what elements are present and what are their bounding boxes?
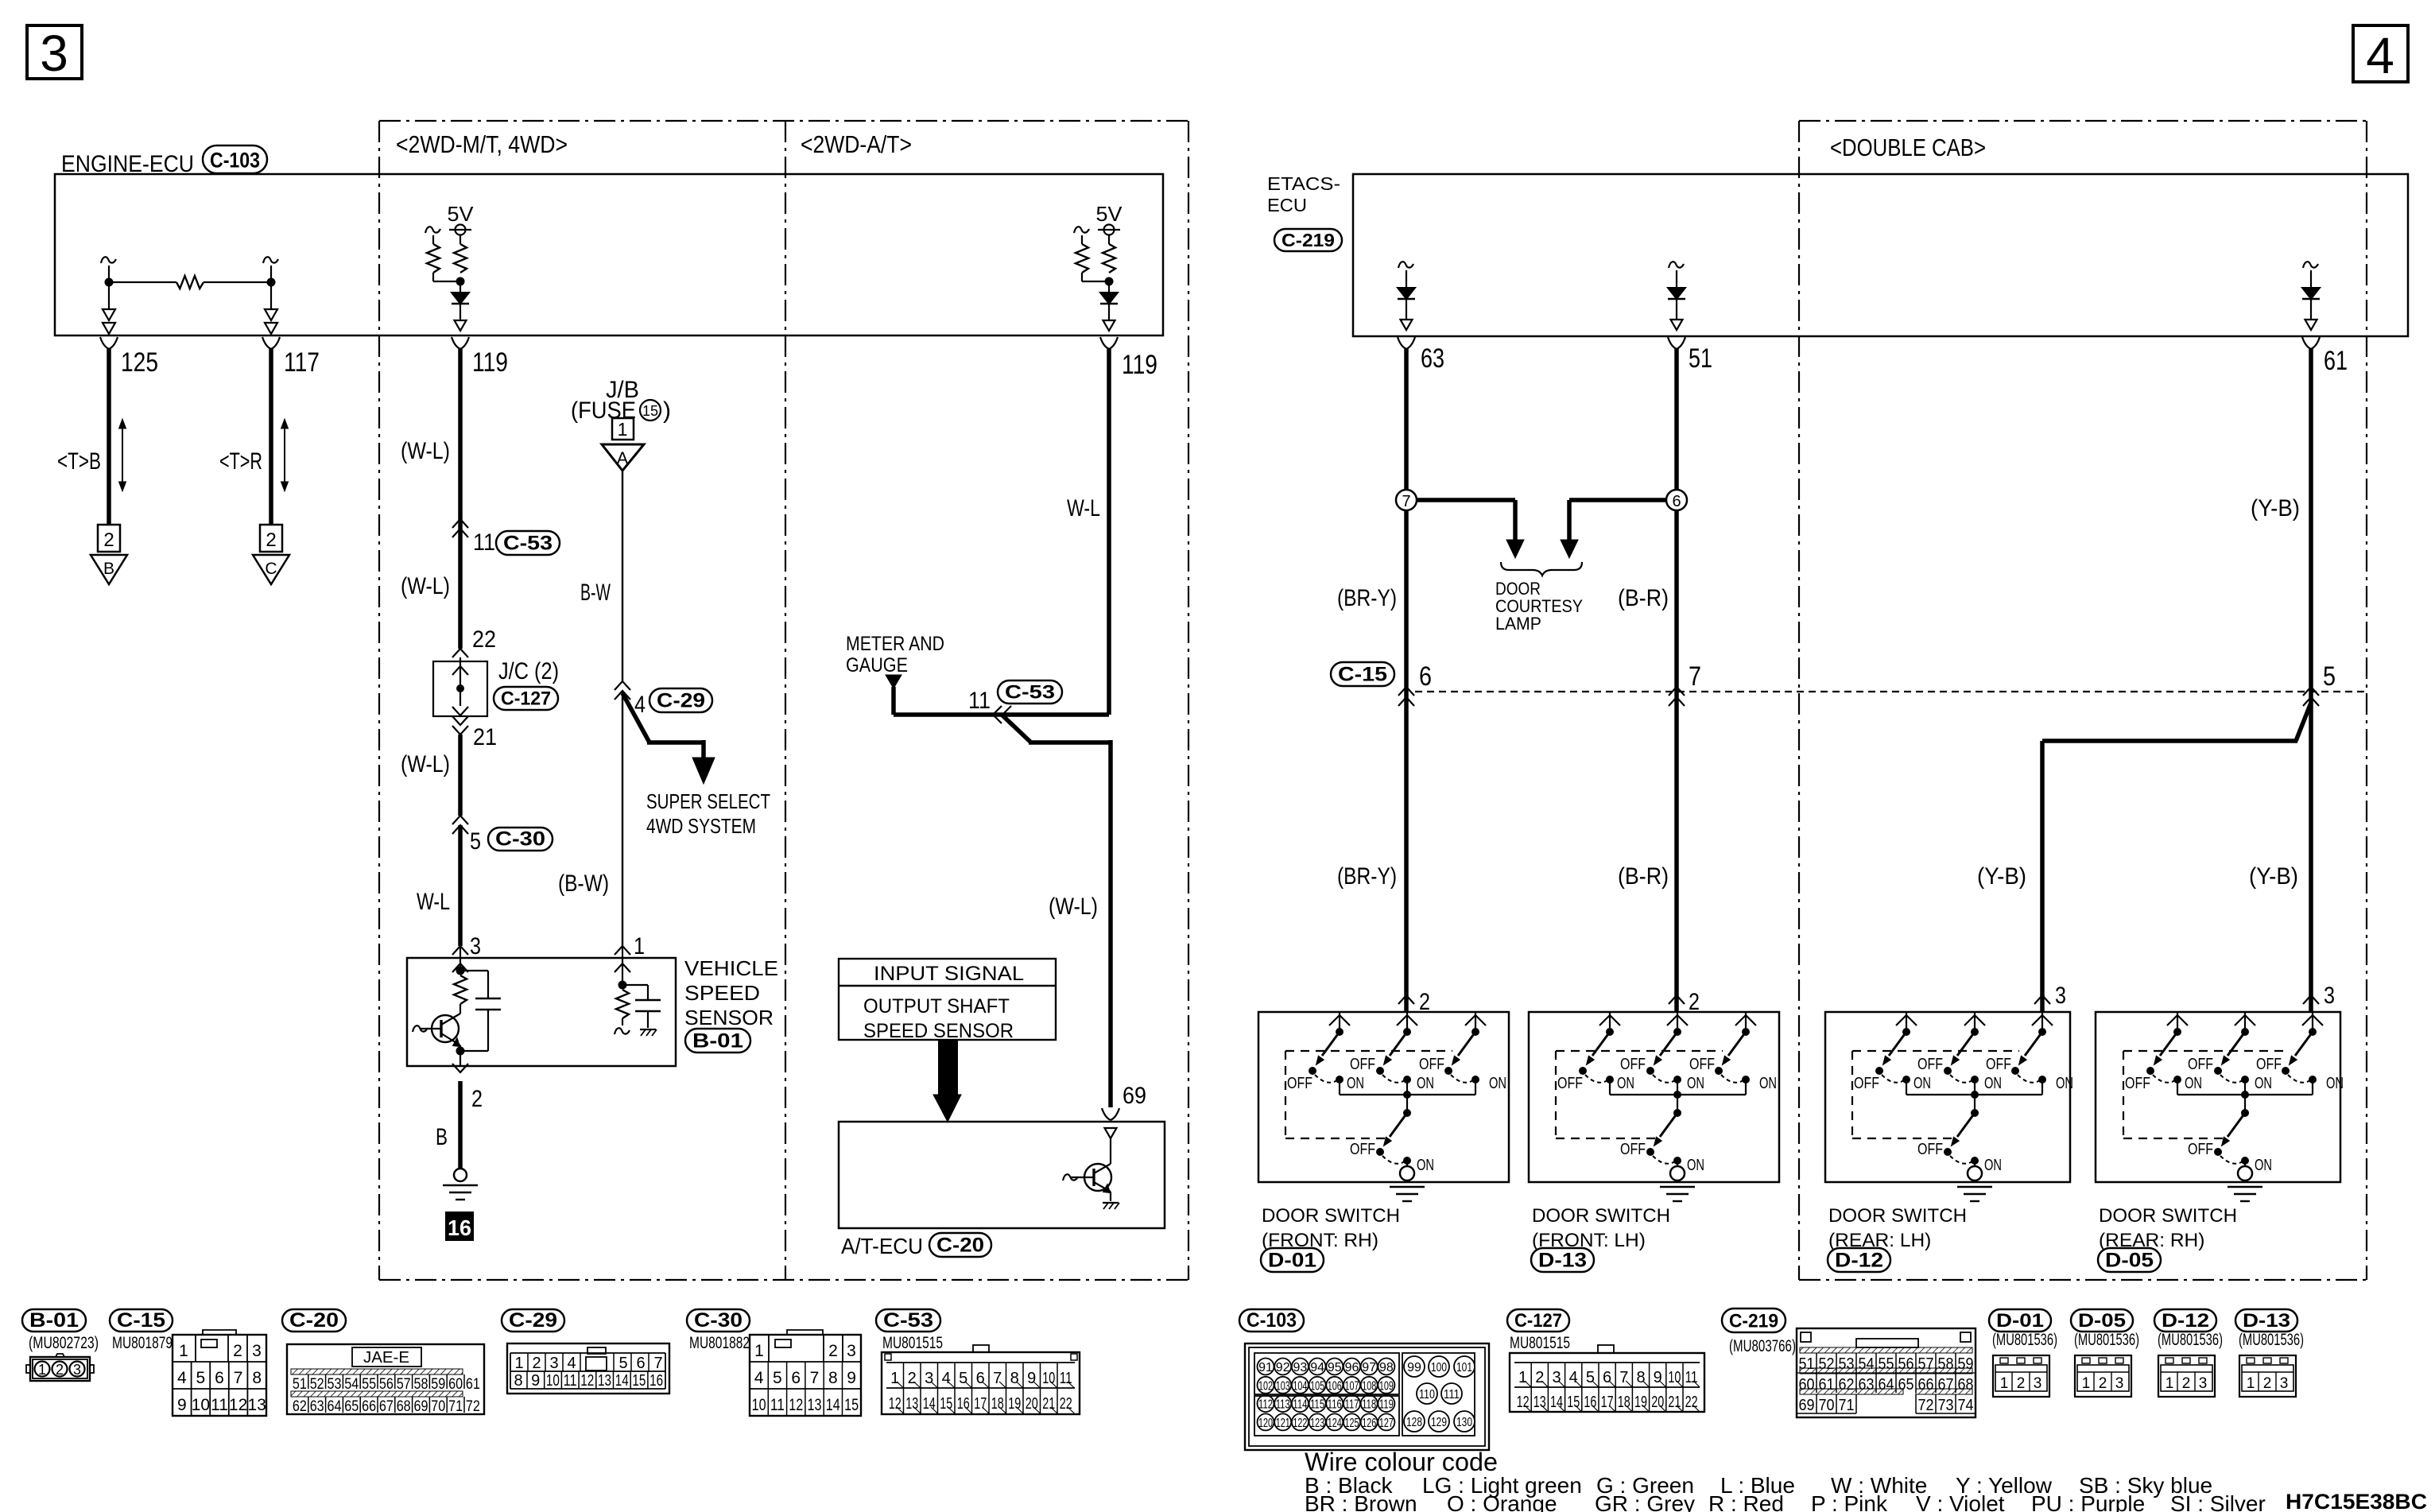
svg-text:DOOR SWITCH: DOOR SWITCH (1532, 1205, 1670, 1227)
svg-text:8: 8 (1636, 1369, 1645, 1386)
svg-text:ON: ON (2255, 1157, 2272, 1174)
svg-text:SPEED: SPEED (684, 981, 760, 1005)
svg-text:15: 15 (632, 1372, 646, 1390)
svg-text:VEHICLE: VEHICLE (684, 956, 778, 980)
svg-text:(B-W): (B-W) (558, 870, 609, 897)
svg-text:1: 1 (2247, 1375, 2255, 1392)
svg-text:3: 3 (925, 1370, 933, 1387)
svg-text:54: 54 (344, 1376, 359, 1393)
svg-text:2: 2 (233, 1342, 242, 1360)
svg-text:PU : Purple: PU : Purple (2031, 1491, 2145, 1512)
svg-text:1: 1 (634, 933, 645, 960)
svg-text:O : Orange: O : Orange (1447, 1491, 1557, 1512)
svg-text:SENSOR: SENSOR (684, 1006, 774, 1029)
svg-text:59: 59 (1958, 1355, 1974, 1373)
svg-text:(Y-B): (Y-B) (2251, 495, 2300, 521)
svg-text:4: 4 (567, 1355, 576, 1372)
svg-text:91: 91 (1258, 1361, 1273, 1374)
svg-text:53: 53 (1839, 1355, 1855, 1373)
svg-text:4: 4 (754, 1369, 764, 1387)
svg-text:D-12: D-12 (1835, 1249, 1883, 1271)
svg-text:W-L: W-L (1067, 495, 1100, 521)
svg-text:ON: ON (2326, 1075, 2344, 1092)
svg-text:ON: ON (1489, 1075, 1506, 1092)
svg-text:2: 2 (908, 1370, 917, 1387)
svg-text:2: 2 (2263, 1375, 2272, 1392)
svg-text:C-30: C-30 (495, 828, 545, 851)
svg-text:108: 108 (1362, 1379, 1376, 1393)
svg-text:14: 14 (826, 1396, 840, 1414)
svg-text:R : Red: R : Red (1708, 1491, 1784, 1512)
svg-text:MU801515: MU801515 (1510, 1334, 1570, 1352)
svg-text:1: 1 (1518, 1369, 1527, 1386)
svg-text:10: 10 (546, 1372, 560, 1390)
svg-text:B-01: B-01 (29, 1309, 79, 1332)
svg-text:15: 15 (642, 403, 658, 419)
svg-text:ON: ON (2185, 1075, 2202, 1092)
svg-text:8: 8 (828, 1369, 838, 1387)
svg-text:OFF: OFF (1854, 1075, 1879, 1092)
svg-text:106: 106 (1328, 1379, 1342, 1393)
svg-text:59: 59 (431, 1376, 445, 1393)
svg-text:68: 68 (1958, 1376, 1974, 1394)
svg-text:5: 5 (470, 828, 481, 855)
svg-text:3: 3 (470, 933, 481, 960)
svg-text:105: 105 (1310, 1379, 1324, 1393)
svg-text:6: 6 (1603, 1369, 1611, 1386)
svg-text:C-103: C-103 (1247, 1309, 1297, 1332)
svg-text:OFF: OFF (1986, 1056, 2011, 1073)
svg-text:DOOR SWITCH: DOOR SWITCH (1828, 1205, 1967, 1227)
svg-text:5: 5 (1586, 1369, 1595, 1386)
svg-text:1: 1 (38, 1362, 46, 1378)
svg-text:126: 126 (1362, 1417, 1376, 1430)
svg-text:13: 13 (808, 1396, 822, 1414)
svg-text:OFF: OFF (2125, 1075, 2150, 1092)
svg-text:53: 53 (328, 1376, 342, 1393)
svg-text:4: 4 (942, 1370, 951, 1387)
svg-text:3: 3 (2034, 1375, 2042, 1392)
svg-text:C-127: C-127 (1514, 1310, 1562, 1332)
svg-text:21: 21 (473, 724, 497, 750)
svg-text:71: 71 (448, 1398, 463, 1415)
svg-text:(Y-B): (Y-B) (2249, 863, 2298, 890)
svg-text:METER AND: METER AND (846, 633, 944, 655)
svg-text:B: B (436, 1124, 448, 1150)
svg-text:4: 4 (1569, 1369, 1578, 1386)
svg-text:58: 58 (414, 1376, 428, 1393)
svg-text:3: 3 (2115, 1375, 2124, 1392)
svg-text:C-29: C-29 (657, 689, 705, 711)
svg-text:6: 6 (976, 1370, 985, 1387)
svg-text:1: 1 (754, 1342, 764, 1360)
svg-text:OFF: OFF (1620, 1056, 1646, 1073)
svg-text:MU801515: MU801515 (882, 1334, 943, 1352)
svg-text:5: 5 (618, 1355, 627, 1372)
svg-text:5: 5 (773, 1369, 782, 1387)
svg-text:101: 101 (1456, 1361, 1472, 1374)
svg-text:3: 3 (549, 1355, 558, 1372)
svg-text:MU801882: MU801882 (689, 1334, 750, 1352)
svg-text:(B-R): (B-R) (1618, 585, 1669, 611)
svg-text:7: 7 (810, 1369, 820, 1387)
svg-text:51: 51 (293, 1376, 307, 1393)
svg-text:C-20: C-20 (936, 1234, 984, 1256)
svg-text:12: 12 (789, 1396, 803, 1414)
svg-text:2: 2 (2017, 1375, 2026, 1392)
svg-text:2: 2 (1535, 1369, 1544, 1386)
svg-text:3: 3 (1552, 1369, 1561, 1386)
svg-text:2: 2 (828, 1342, 838, 1360)
svg-text:125: 125 (1345, 1417, 1359, 1430)
svg-text:70: 70 (1819, 1397, 1835, 1414)
svg-text:103: 103 (1276, 1379, 1290, 1393)
svg-text:D-01: D-01 (1268, 1249, 1316, 1271)
svg-text:8: 8 (252, 1369, 262, 1387)
svg-text:57: 57 (397, 1376, 411, 1393)
svg-text:D-13: D-13 (2243, 1310, 2290, 1332)
svg-text:P : Pink: P : Pink (1811, 1491, 1888, 1512)
svg-text:113: 113 (1276, 1398, 1290, 1412)
svg-text:2: 2 (471, 1086, 483, 1112)
svg-text:122: 122 (1293, 1417, 1307, 1430)
svg-text:97: 97 (1362, 1361, 1376, 1374)
svg-text:6: 6 (1419, 661, 1432, 692)
svg-text:DOOR SWITCH: DOOR SWITCH (1262, 1205, 1400, 1227)
svg-text:56: 56 (1898, 1355, 1914, 1373)
svg-text:119: 119 (1122, 350, 1157, 380)
svg-text:<DOUBLE CAB>: <DOUBLE CAB> (1830, 134, 1986, 161)
svg-text:112: 112 (1258, 1398, 1273, 1412)
svg-text:61: 61 (2324, 346, 2348, 376)
svg-text:OFF: OFF (1917, 1056, 1943, 1073)
svg-text:120: 120 (1258, 1417, 1273, 1430)
svg-text:9: 9 (847, 1369, 856, 1387)
svg-text:127: 127 (1379, 1417, 1394, 1430)
svg-text:OFF: OFF (2188, 1141, 2213, 1158)
svg-text:52: 52 (1819, 1355, 1835, 1373)
svg-text:C-30: C-30 (694, 1309, 743, 1332)
svg-text:ON: ON (1617, 1075, 1634, 1092)
svg-text:C-219: C-219 (1281, 230, 1335, 250)
svg-text:OFF: OFF (1419, 1056, 1444, 1073)
svg-text:V : Violet: V : Violet (1916, 1491, 2005, 1512)
svg-text:109: 109 (1379, 1379, 1394, 1393)
svg-text:D-12: D-12 (2162, 1310, 2209, 1332)
svg-text:16: 16 (448, 1215, 471, 1240)
svg-text:SI : Silver: SI : Silver (2170, 1491, 2266, 1512)
svg-text:102: 102 (1258, 1379, 1273, 1393)
svg-text:115: 115 (1310, 1398, 1324, 1412)
svg-text:66: 66 (362, 1398, 376, 1415)
svg-text:C-20: C-20 (289, 1309, 339, 1332)
svg-text:ON: ON (1417, 1157, 1434, 1174)
svg-text:2: 2 (56, 1362, 64, 1378)
svg-text:ON: ON (1984, 1157, 2002, 1174)
svg-text:D-05: D-05 (2078, 1310, 2126, 1332)
svg-text:(BR-Y): (BR-Y) (1337, 863, 1397, 890)
svg-text:OFF: OFF (1557, 1075, 1583, 1092)
svg-text:14: 14 (615, 1372, 629, 1390)
svg-text:3: 3 (73, 1362, 81, 1378)
svg-text:74: 74 (1958, 1397, 1974, 1414)
svg-text:114: 114 (1293, 1398, 1307, 1412)
svg-text:7: 7 (653, 1355, 662, 1372)
svg-text:MU801879: MU801879 (112, 1334, 173, 1352)
svg-text:12: 12 (580, 1372, 594, 1390)
svg-text:12: 12 (229, 1396, 247, 1414)
svg-text:C-127: C-127 (501, 688, 551, 710)
svg-text:3: 3 (2324, 983, 2335, 1009)
svg-text:7: 7 (1402, 493, 1410, 510)
svg-text:JAE-E: JAE-E (363, 1349, 409, 1367)
svg-text:96: 96 (1345, 1361, 1359, 1374)
svg-text:2: 2 (532, 1355, 541, 1372)
svg-text:): ) (663, 397, 671, 424)
svg-text:63: 63 (1859, 1376, 1875, 1394)
svg-text:58: 58 (1938, 1355, 1954, 1373)
svg-text:6: 6 (215, 1369, 224, 1387)
svg-text:73: 73 (1938, 1397, 1954, 1414)
svg-text:13: 13 (598, 1372, 611, 1390)
svg-text:(MU802723): (MU802723) (29, 1334, 99, 1352)
svg-text:64: 64 (1879, 1376, 1894, 1394)
svg-text:GAUGE: GAUGE (846, 654, 908, 677)
svg-text:(MU801536): (MU801536) (1992, 1331, 2057, 1349)
svg-text:117: 117 (284, 347, 320, 378)
svg-text:63: 63 (1421, 343, 1444, 374)
svg-text:119: 119 (1379, 1398, 1394, 1412)
svg-text:C-53: C-53 (883, 1309, 933, 1332)
svg-text:1: 1 (618, 419, 628, 440)
svg-text:52: 52 (310, 1376, 324, 1393)
svg-text:72: 72 (1918, 1397, 1934, 1414)
svg-text:<2WD-A/T>: <2WD-A/T> (801, 130, 912, 158)
svg-text:57: 57 (1918, 1355, 1934, 1373)
svg-text:11: 11 (473, 529, 495, 556)
svg-text:11: 11 (770, 1396, 785, 1414)
svg-text:2: 2 (103, 529, 114, 551)
svg-text:116: 116 (1328, 1398, 1342, 1412)
svg-text:13: 13 (248, 1396, 266, 1414)
svg-text:C-53: C-53 (503, 532, 553, 554)
svg-text:J/C (2): J/C (2) (498, 658, 559, 684)
svg-text:OFF: OFF (2256, 1056, 2282, 1073)
svg-text:H7C15E38BC: H7C15E38BC (2286, 1490, 2427, 1512)
svg-text:(MU801536): (MU801536) (2239, 1331, 2304, 1349)
svg-text:C-29: C-29 (509, 1309, 557, 1332)
svg-text:16: 16 (649, 1372, 663, 1390)
svg-text:C-219: C-219 (1729, 1310, 1778, 1332)
svg-text:71: 71 (1839, 1397, 1855, 1414)
svg-text:4: 4 (2366, 27, 2394, 84)
svg-text:110: 110 (1419, 1388, 1435, 1402)
svg-text:111: 111 (1444, 1388, 1460, 1402)
svg-text:LAMP: LAMP (1495, 614, 1541, 634)
svg-text:ON: ON (1913, 1075, 1931, 1092)
svg-text:OFF: OFF (1689, 1056, 1715, 1073)
svg-text:125: 125 (121, 347, 158, 378)
svg-text:117: 117 (1345, 1398, 1359, 1412)
svg-text:2: 2 (2099, 1375, 2107, 1392)
svg-text:128: 128 (1406, 1416, 1422, 1429)
svg-text:2: 2 (2182, 1375, 2191, 1392)
svg-text:5: 5 (196, 1369, 206, 1387)
svg-text:10: 10 (752, 1396, 766, 1414)
svg-text:121: 121 (1276, 1417, 1290, 1430)
svg-text:61: 61 (466, 1376, 480, 1393)
svg-text:OFF: OFF (1350, 1141, 1375, 1158)
svg-text:51: 51 (1689, 343, 1712, 374)
svg-text:8: 8 (514, 1372, 522, 1390)
svg-text:61: 61 (1819, 1376, 1835, 1394)
svg-text:OFF: OFF (1350, 1056, 1375, 1073)
svg-text:99: 99 (1407, 1361, 1421, 1374)
svg-text:C-15: C-15 (117, 1309, 165, 1332)
svg-text:1: 1 (514, 1355, 523, 1372)
svg-text:3: 3 (2199, 1375, 2208, 1392)
svg-text:104: 104 (1293, 1379, 1307, 1393)
svg-text:ETACS-: ETACS- (1267, 173, 1340, 194)
svg-text:119: 119 (472, 347, 508, 378)
svg-text:93: 93 (1293, 1361, 1308, 1374)
svg-text:1: 1 (890, 1370, 899, 1387)
svg-text:GR : Grey: GR : Grey (1595, 1491, 1695, 1512)
svg-text:11: 11 (968, 688, 991, 714)
svg-text:(MU801536): (MU801536) (2074, 1331, 2139, 1349)
svg-text:3: 3 (847, 1342, 856, 1360)
svg-text:BR : Brown: BR : Brown (1305, 1491, 1417, 1512)
svg-text:ON: ON (2056, 1075, 2073, 1092)
svg-text:7: 7 (234, 1369, 243, 1387)
svg-text:<T>R: <T>R (219, 448, 262, 475)
svg-text:63: 63 (310, 1398, 324, 1415)
svg-text:4WD SYSTEM: 4WD SYSTEM (646, 814, 756, 838)
svg-text:70: 70 (431, 1398, 445, 1415)
svg-text:(MU801536): (MU801536) (2158, 1331, 2223, 1349)
svg-text:65: 65 (344, 1398, 359, 1415)
svg-text:8: 8 (1010, 1370, 1019, 1387)
svg-text:22: 22 (472, 626, 496, 653)
svg-text:(B-R): (B-R) (1618, 863, 1669, 890)
svg-text:64: 64 (328, 1398, 342, 1415)
svg-text:ON: ON (2255, 1075, 2272, 1092)
svg-text:SUPER SELECT: SUPER SELECT (646, 789, 770, 813)
svg-text:60: 60 (1799, 1376, 1815, 1394)
svg-text:ON: ON (1759, 1075, 1777, 1092)
svg-text:ON: ON (1687, 1157, 1704, 1174)
svg-text:1: 1 (2082, 1375, 2091, 1392)
svg-text:4: 4 (177, 1369, 187, 1387)
svg-text:2: 2 (266, 529, 276, 551)
svg-text:<2WD-M/T, 4WD>: <2WD-M/T, 4WD> (396, 130, 568, 158)
svg-text:DOOR SWITCH: DOOR SWITCH (2099, 1205, 2237, 1227)
svg-text:51: 51 (1799, 1355, 1815, 1373)
svg-text:OFF: OFF (1917, 1141, 1943, 1158)
svg-text:C-53: C-53 (1005, 682, 1055, 704)
svg-text:ON: ON (1347, 1075, 1364, 1092)
svg-text:56: 56 (379, 1376, 394, 1393)
svg-text:<T>B: <T>B (57, 448, 101, 475)
svg-text:107: 107 (1345, 1379, 1359, 1393)
svg-text:B-01: B-01 (692, 1029, 743, 1052)
svg-text:(W-L): (W-L) (1049, 894, 1098, 920)
svg-text:3: 3 (2280, 1375, 2289, 1392)
svg-text:6: 6 (791, 1369, 801, 1387)
svg-text:62: 62 (293, 1398, 307, 1415)
svg-text:68: 68 (397, 1398, 411, 1415)
svg-text:98: 98 (1379, 1361, 1394, 1374)
svg-text:55: 55 (362, 1376, 376, 1393)
svg-text:6: 6 (1672, 493, 1681, 510)
svg-text:(Y-B): (Y-B) (1977, 863, 2026, 890)
svg-text:67: 67 (379, 1398, 394, 1415)
svg-text:5: 5 (959, 1370, 967, 1387)
svg-text:9: 9 (177, 1396, 187, 1414)
svg-text:92: 92 (1276, 1361, 1290, 1374)
svg-text:ON: ON (1984, 1075, 2002, 1092)
svg-text:(BR-Y): (BR-Y) (1337, 585, 1397, 611)
svg-text:ECU: ECU (1267, 195, 1307, 215)
svg-text:1: 1 (2000, 1375, 2009, 1392)
svg-text:7: 7 (1619, 1369, 1628, 1386)
svg-text:60: 60 (448, 1376, 463, 1393)
svg-text:5V: 5V (448, 202, 475, 226)
svg-text:3: 3 (40, 25, 68, 82)
svg-text:129: 129 (1431, 1416, 1447, 1429)
svg-text:D-01: D-01 (1996, 1310, 2044, 1332)
svg-text:(W-L): (W-L) (401, 573, 450, 599)
svg-text:B-W: B-W (580, 580, 611, 606)
svg-text:9: 9 (531, 1372, 540, 1390)
svg-text:5: 5 (2323, 661, 2336, 692)
svg-text:3: 3 (2055, 983, 2066, 1009)
svg-text:72: 72 (466, 1398, 480, 1415)
svg-text:66: 66 (1918, 1376, 1934, 1394)
svg-text:11: 11 (564, 1372, 577, 1390)
svg-text:62: 62 (1839, 1376, 1855, 1394)
svg-text:C-15: C-15 (1338, 663, 1387, 685)
svg-text:123: 123 (1310, 1417, 1324, 1430)
svg-text:65: 65 (1898, 1376, 1914, 1394)
svg-text:15: 15 (844, 1396, 859, 1414)
svg-text:69: 69 (1123, 1083, 1146, 1109)
svg-text:95: 95 (1328, 1361, 1342, 1374)
svg-text:A: A (617, 448, 629, 468)
svg-text:3: 3 (252, 1342, 262, 1360)
svg-text:9: 9 (1654, 1369, 1662, 1386)
svg-text:ON: ON (1687, 1075, 1704, 1092)
svg-text:ON: ON (1417, 1075, 1434, 1092)
svg-text:Wire colour code: Wire colour code (1305, 1448, 1498, 1476)
svg-text:54: 54 (1859, 1355, 1875, 1373)
svg-text:(MU803766): (MU803766) (1729, 1337, 1796, 1355)
svg-text:118: 118 (1362, 1398, 1376, 1412)
svg-text:OFF: OFF (1287, 1075, 1312, 1092)
svg-text:OFF: OFF (2188, 1056, 2213, 1073)
svg-text:6: 6 (636, 1355, 645, 1372)
svg-text:(W-L): (W-L) (401, 438, 450, 464)
svg-text:55: 55 (1879, 1355, 1894, 1373)
svg-text:67: 67 (1938, 1376, 1954, 1394)
svg-text:124: 124 (1328, 1417, 1342, 1430)
svg-text:D-05: D-05 (2105, 1249, 2154, 1271)
svg-text:W-L: W-L (417, 889, 450, 915)
svg-text:7: 7 (993, 1370, 1002, 1387)
svg-text:C-103: C-103 (210, 148, 260, 172)
svg-text:94: 94 (1310, 1361, 1324, 1374)
svg-text:5V: 5V (1096, 202, 1123, 226)
